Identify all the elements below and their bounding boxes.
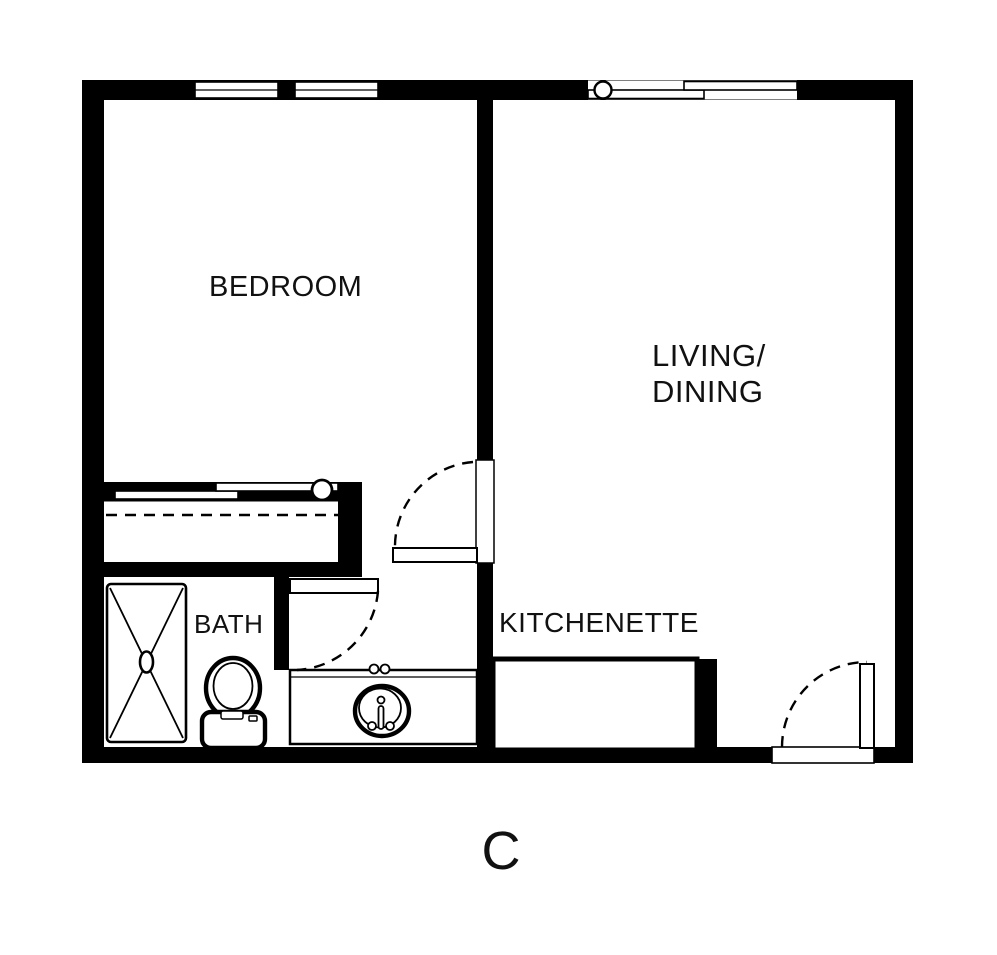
door-leaf bbox=[393, 548, 477, 562]
door-swing-arc bbox=[782, 662, 867, 747]
room-label-living-dining: LIVING/ DINING bbox=[652, 338, 766, 410]
wall-kitchenette-stub bbox=[697, 659, 717, 763]
kitchenette-counter bbox=[493, 659, 697, 750]
toilet-flush-button bbox=[249, 716, 257, 721]
door-threshold bbox=[772, 747, 874, 763]
sink-drain bbox=[378, 697, 385, 704]
door-swing-arc bbox=[297, 591, 378, 670]
sink-faucet bbox=[379, 706, 384, 729]
living-sliding-window bbox=[588, 81, 797, 100]
room-label-bath: BATH bbox=[194, 609, 263, 640]
door-stop-bump bbox=[370, 665, 379, 674]
wall-bedroom-living-upper bbox=[477, 100, 493, 460]
bedroom-door bbox=[393, 460, 494, 563]
sliding-panel-left bbox=[115, 491, 238, 499]
room-label-kitchenette: KITCHENETTE bbox=[499, 607, 699, 639]
sink-handle-left bbox=[368, 722, 376, 730]
window-lock-icon bbox=[595, 82, 612, 99]
room-label-living-line1: LIVING/ bbox=[652, 338, 766, 374]
sink-handle-right bbox=[386, 722, 394, 730]
bath-door bbox=[290, 579, 390, 674]
toilet-hinge bbox=[221, 711, 243, 719]
toilet-icon bbox=[202, 658, 265, 748]
shower-drain bbox=[140, 652, 153, 673]
sink-icon bbox=[355, 686, 409, 736]
door-stop-bump bbox=[381, 665, 390, 674]
entry-door bbox=[772, 662, 874, 763]
door-swing-arc bbox=[395, 462, 473, 549]
door-leaf bbox=[290, 579, 378, 593]
wall-bath-partition bbox=[274, 577, 289, 670]
wall-closet-bottom bbox=[82, 562, 362, 577]
wall-right bbox=[895, 100, 913, 763]
unit-label: C bbox=[471, 820, 531, 882]
shower-icon bbox=[107, 584, 186, 742]
sliding-panel-right bbox=[684, 82, 797, 91]
door-lock-icon bbox=[312, 480, 332, 500]
floorplan-drawing bbox=[0, 0, 997, 955]
closet-interior bbox=[104, 501, 348, 516]
counter-outline bbox=[493, 659, 697, 750]
wall-left bbox=[82, 100, 104, 763]
floorplan-canvas: BEDROOM LIVING/ DINING KITCHENETTE BATH … bbox=[0, 0, 997, 955]
door-opening bbox=[476, 460, 494, 563]
door-leaf bbox=[860, 664, 874, 748]
room-label-bedroom: BEDROOM bbox=[209, 271, 362, 304]
room-label-living-line2: DINING bbox=[652, 374, 766, 410]
